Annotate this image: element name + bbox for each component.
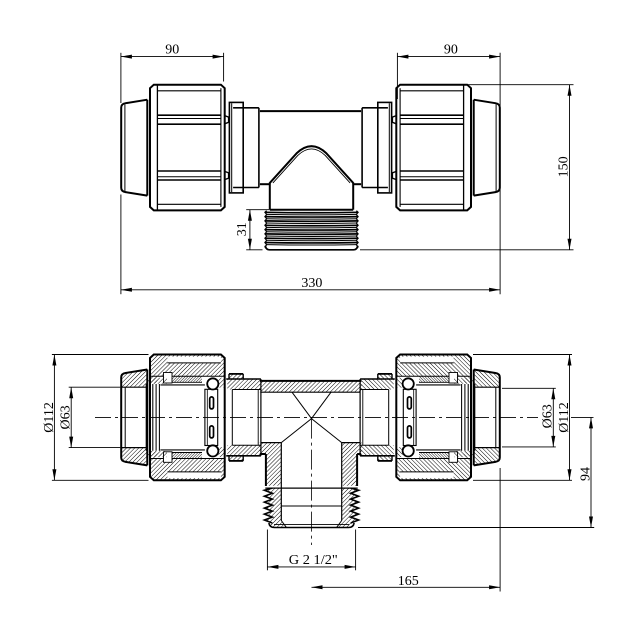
svg-text:Ø63: Ø63	[541, 404, 556, 428]
svg-text:90: 90	[444, 43, 458, 58]
svg-text:Ø112: Ø112	[42, 402, 57, 433]
svg-text:G 2 1/2": G 2 1/2"	[289, 553, 338, 568]
svg-text:90: 90	[165, 43, 179, 58]
svg-text:330: 330	[301, 276, 322, 291]
svg-text:94: 94	[578, 467, 593, 481]
svg-text:31: 31	[235, 222, 250, 236]
svg-text:Ø112: Ø112	[557, 402, 572, 433]
svg-text:Ø63: Ø63	[58, 405, 73, 429]
svg-text:165: 165	[398, 574, 419, 589]
svg-text:150: 150	[557, 156, 572, 177]
